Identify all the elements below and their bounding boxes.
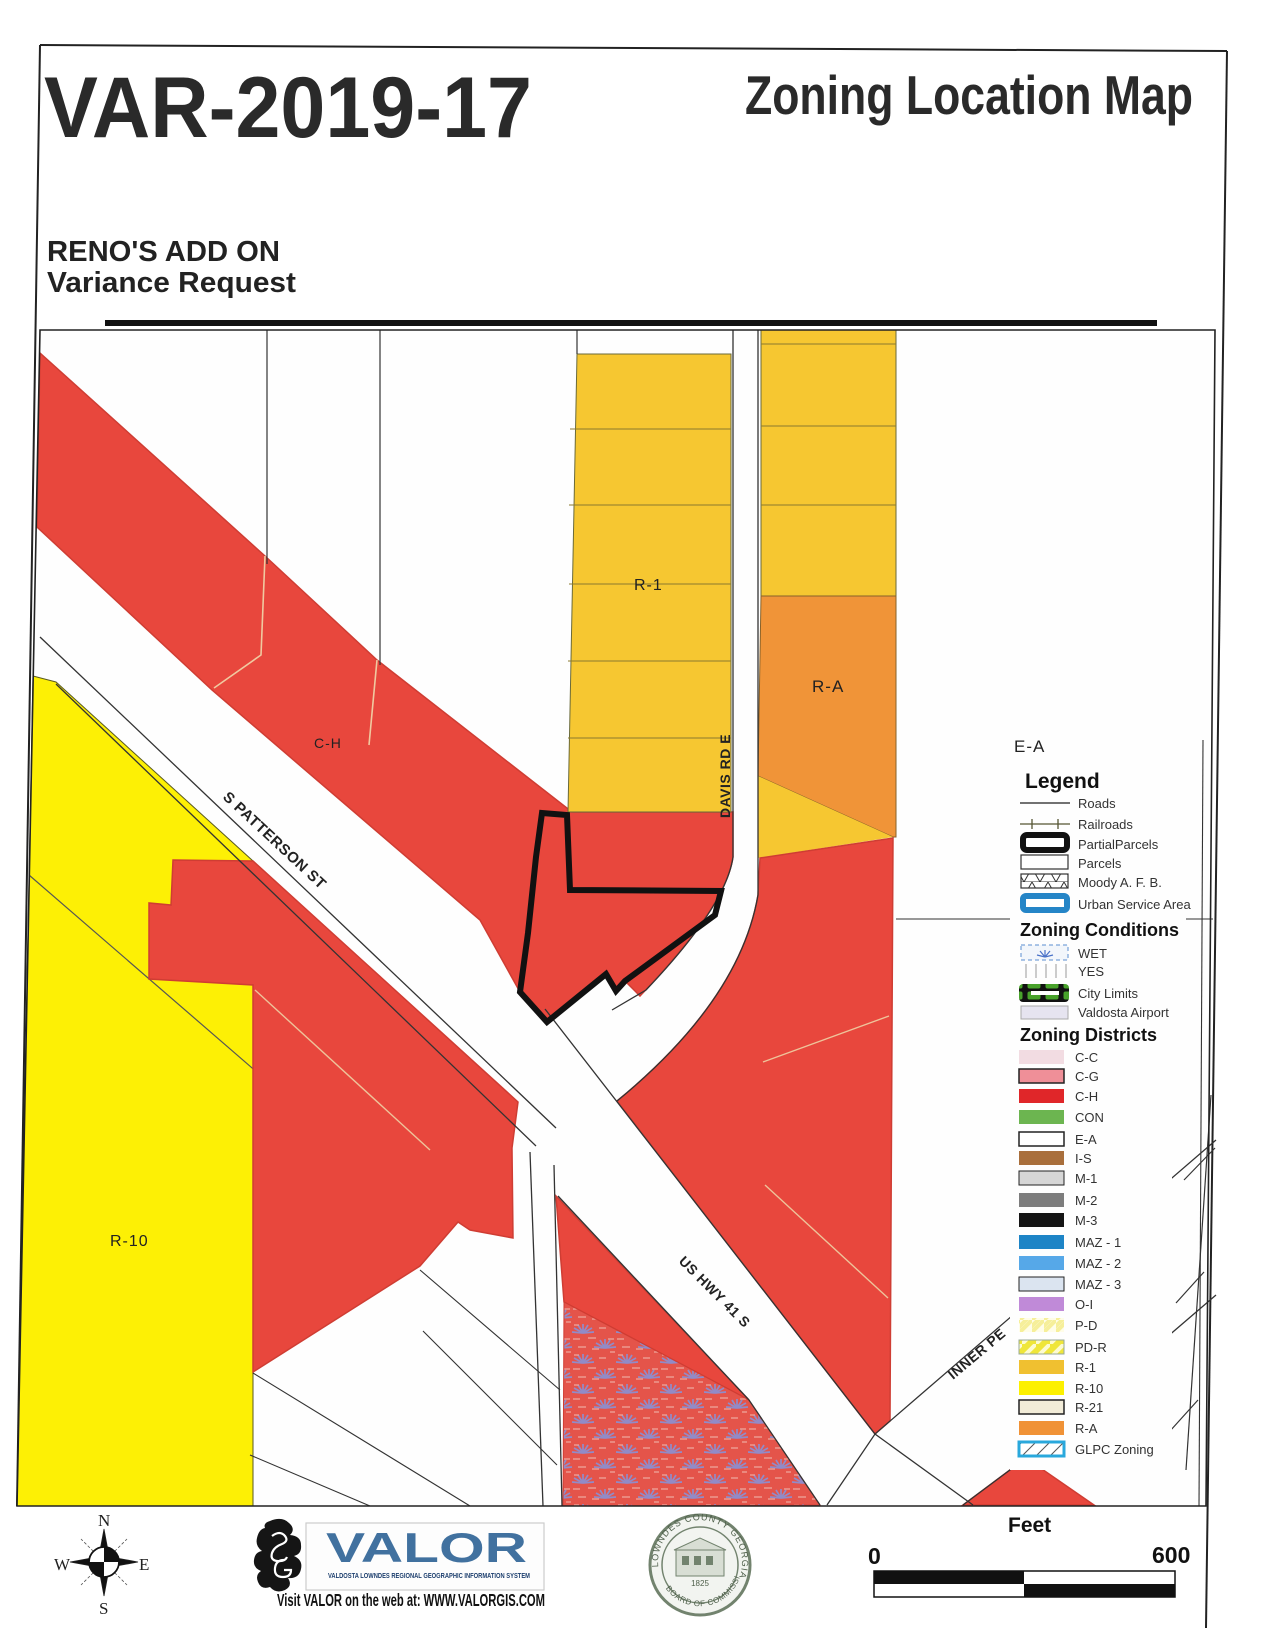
svg-text:Zoning Location Map: Zoning Location Map: [745, 64, 1193, 126]
svg-text:Urban Service Area: Urban Service Area: [1078, 897, 1191, 912]
svg-text:E-A: E-A: [1014, 737, 1045, 756]
svg-text:Railroads: Railroads: [1078, 817, 1133, 832]
svg-text:Feet: Feet: [1008, 1514, 1051, 1537]
svg-text:Roads: Roads: [1078, 796, 1116, 811]
svg-text:DAVIS RD E: DAVIS RD E: [717, 734, 733, 818]
svg-text:Zoning Districts: Zoning Districts: [1020, 1025, 1157, 1045]
svg-text:E-A: E-A: [1075, 1132, 1097, 1147]
svg-text:VAR-2019-17: VAR-2019-17: [44, 60, 532, 156]
svg-text:M-3: M-3: [1075, 1213, 1097, 1228]
svg-text:RENO'S ADD ON: RENO'S ADD ON: [47, 236, 280, 268]
svg-text:C-C: C-C: [1075, 1050, 1098, 1065]
svg-text:M-1: M-1: [1075, 1171, 1097, 1186]
svg-text:N: N: [98, 1511, 110, 1530]
svg-text:S: S: [99, 1599, 108, 1618]
svg-text:C-G: C-G: [1075, 1069, 1099, 1084]
svg-text:MAZ - 3: MAZ - 3: [1075, 1277, 1121, 1292]
svg-text:R-10: R-10: [110, 1233, 149, 1250]
svg-text:Moody A. F. B.: Moody A. F. B.: [1078, 875, 1162, 890]
svg-text:Parcels: Parcels: [1078, 856, 1122, 871]
svg-text:R-1: R-1: [1075, 1360, 1096, 1375]
svg-text:E: E: [139, 1555, 149, 1574]
svg-text:P-D: P-D: [1075, 1318, 1097, 1333]
svg-text:GLPC Zoning: GLPC Zoning: [1075, 1442, 1154, 1457]
svg-text:City Limits: City Limits: [1078, 986, 1138, 1001]
svg-text:Visit VALOR on the web at: WWW: Visit VALOR on the web at: WWW.VALORGIS.…: [277, 1590, 545, 1610]
svg-text:0: 0: [868, 1543, 881, 1569]
svg-text:R-A: R-A: [812, 677, 844, 696]
svg-text:R-A: R-A: [1075, 1421, 1098, 1436]
svg-text:VALOR: VALOR: [326, 1524, 527, 1571]
svg-text:Valdosta Airport: Valdosta Airport: [1078, 1005, 1169, 1020]
svg-text:Zoning Conditions: Zoning Conditions: [1020, 920, 1179, 940]
svg-text:R-1: R-1: [634, 577, 663, 594]
svg-text:MAZ - 2: MAZ - 2: [1075, 1256, 1121, 1271]
svg-text:O-I: O-I: [1075, 1297, 1093, 1312]
svg-text:YES: YES: [1078, 964, 1104, 979]
svg-text:W: W: [54, 1555, 71, 1574]
svg-text:I-S: I-S: [1075, 1151, 1092, 1166]
svg-text:Variance Request: Variance Request: [47, 267, 296, 299]
svg-text:C-H: C-H: [1075, 1089, 1098, 1104]
svg-text:WET: WET: [1078, 946, 1107, 961]
svg-text:R-21: R-21: [1075, 1400, 1103, 1415]
svg-text:MAZ - 1: MAZ - 1: [1075, 1235, 1121, 1250]
svg-text:C-H: C-H: [314, 735, 342, 751]
svg-text:1825: 1825: [691, 1579, 709, 1588]
svg-text:R-10: R-10: [1075, 1381, 1103, 1396]
svg-text:M-2: M-2: [1075, 1193, 1097, 1208]
svg-text:VALDOSTA LOWNDES REGIONAL GEOG: VALDOSTA LOWNDES REGIONAL GEOGRAPHIC INF…: [328, 1571, 530, 1580]
svg-text:CON: CON: [1075, 1110, 1104, 1125]
svg-text:PD-R: PD-R: [1075, 1340, 1107, 1355]
svg-text:600: 600: [1152, 1542, 1190, 1568]
svg-text:PartialParcels: PartialParcels: [1078, 837, 1159, 852]
svg-text:Legend: Legend: [1025, 770, 1100, 793]
